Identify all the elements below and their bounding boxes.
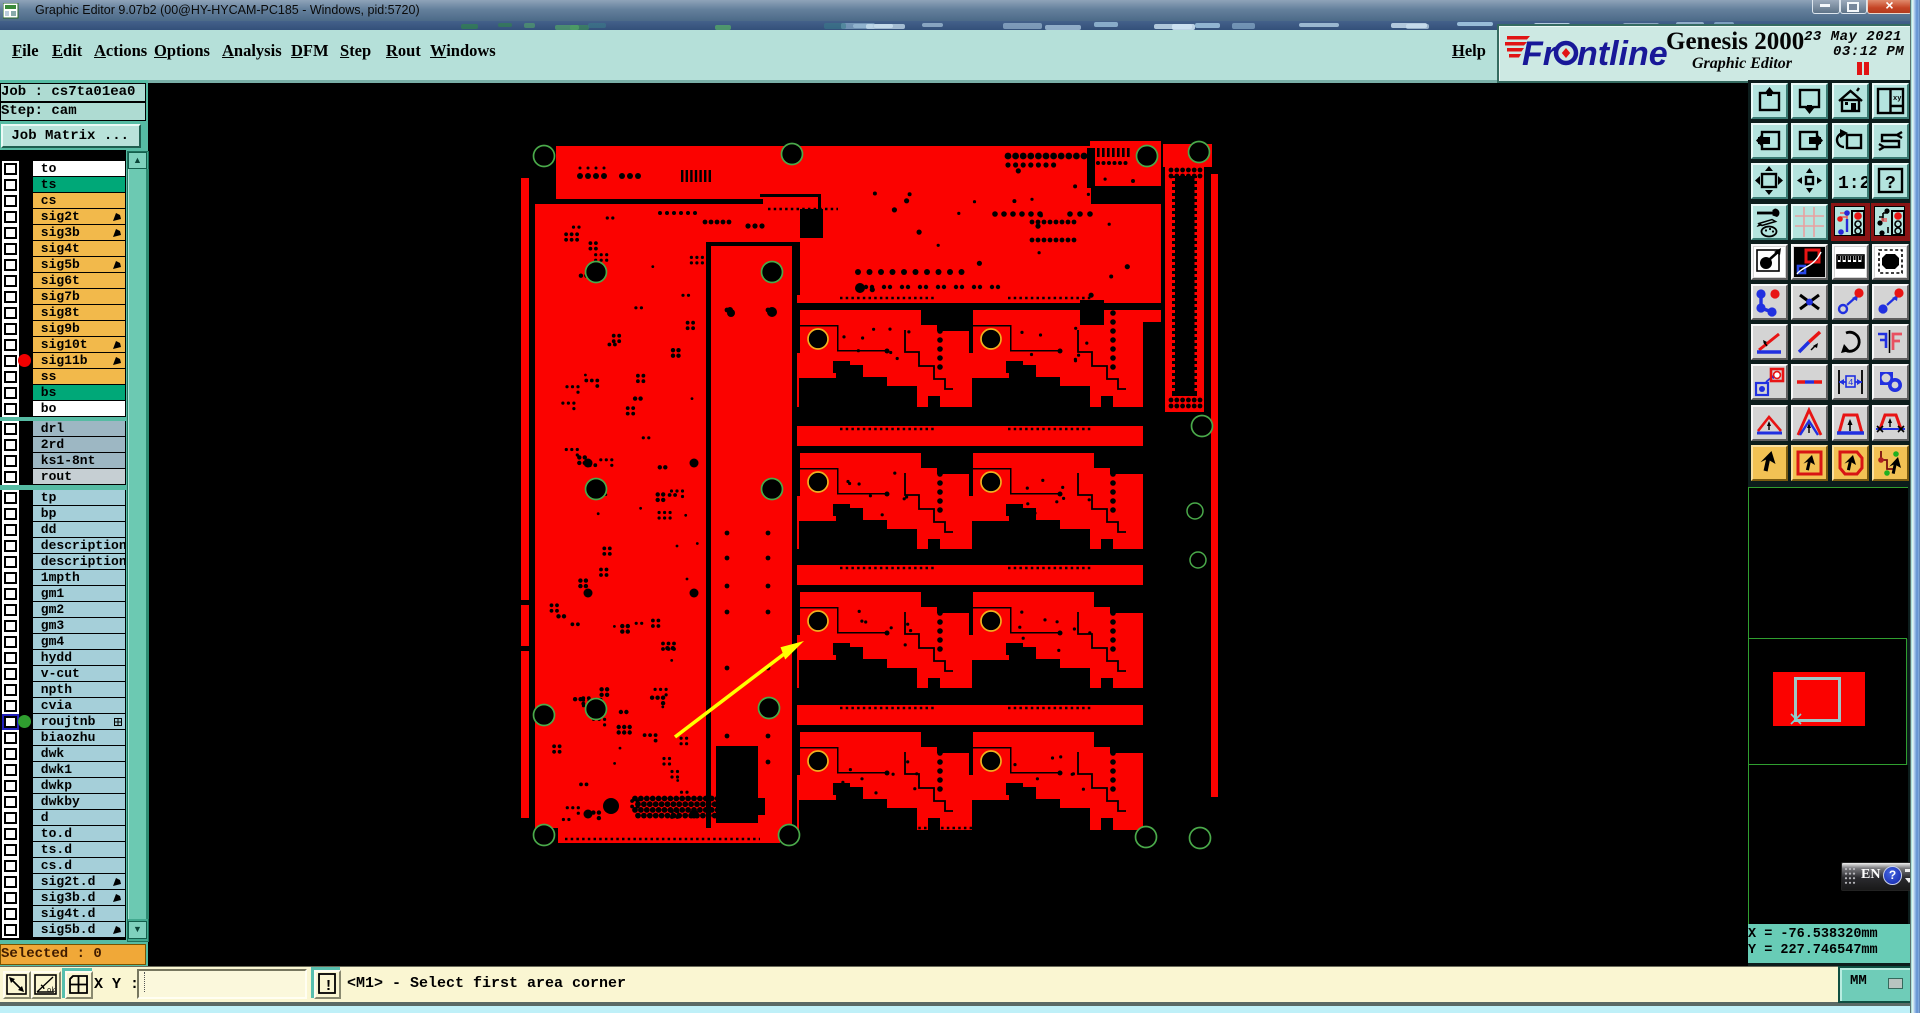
svg-text:ok: ok (47, 987, 55, 995)
svg-text:xy: xy (1893, 95, 1902, 103)
svg-text:!: ! (324, 978, 333, 995)
svg-text:?: ? (1885, 174, 1896, 194)
svg-text:1:2: 1:2 (1838, 174, 1867, 194)
svg-text:ntline: ntline (1577, 35, 1667, 73)
svg-text:Fr: Fr (1522, 35, 1558, 73)
svg-text:4: 4 (1848, 378, 1853, 388)
